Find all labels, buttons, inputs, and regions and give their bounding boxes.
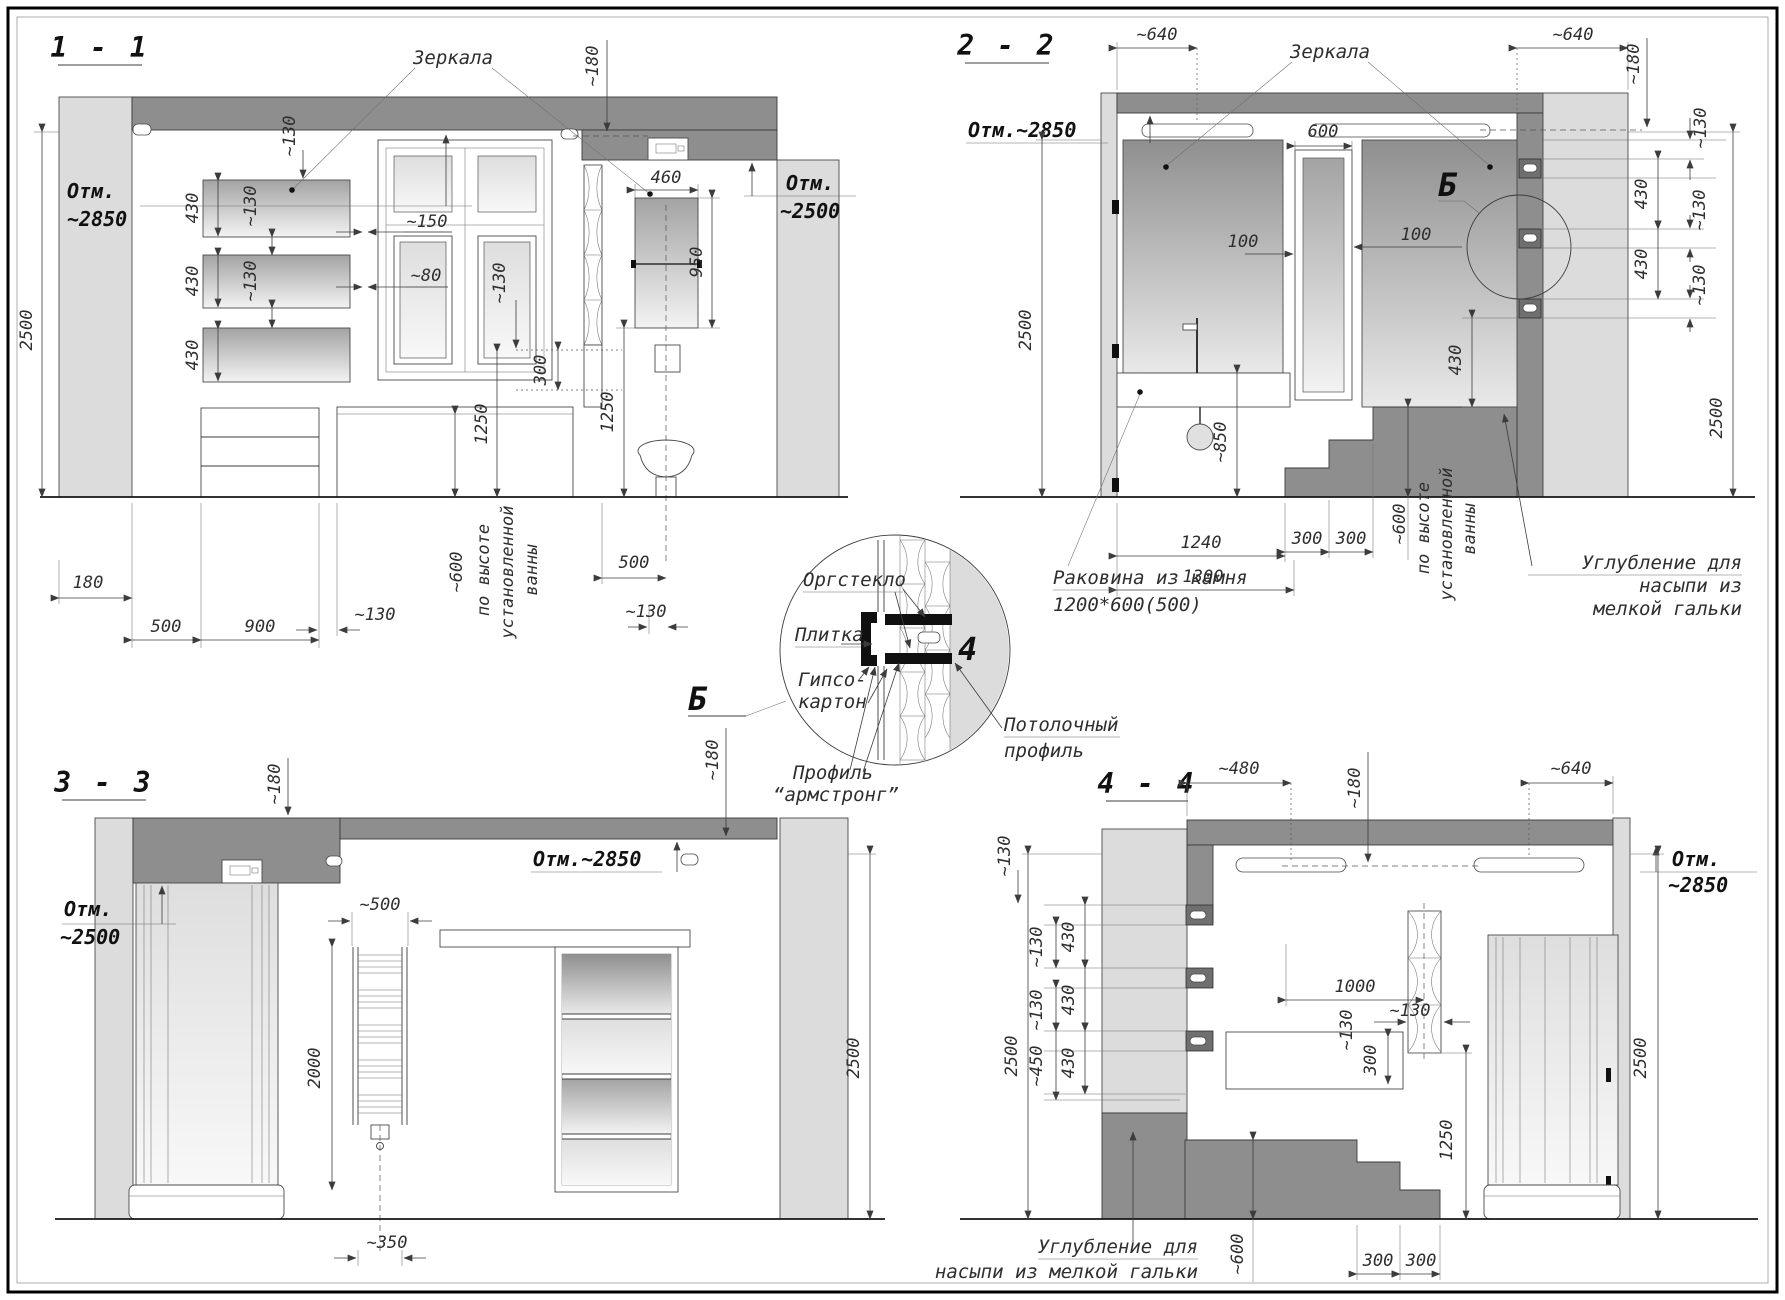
mirror — [203, 255, 350, 308]
recess-note: мелкой гальки — [1592, 598, 1742, 620]
elevation-label: Отм. — [67, 179, 115, 203]
dim-text: 300 — [531, 355, 551, 387]
dim-text: 1250 — [1437, 1120, 1457, 1161]
wall-column — [1102, 829, 1187, 1113]
dim-text: ~850 — [1211, 422, 1231, 463]
dim-text: ~130 — [355, 605, 396, 625]
dim-note: по высоте — [1414, 482, 1434, 574]
dim-text: ~350 — [367, 1233, 408, 1253]
dim-text: ~130 — [490, 263, 510, 304]
dim-text: ~130 — [1690, 265, 1710, 306]
dim-text: 430 — [1059, 985, 1079, 1016]
dim-text: ~180 — [1624, 44, 1644, 85]
dim-text: 500 — [151, 617, 182, 637]
wall-shelf — [440, 930, 690, 947]
recess-note: Углубление для — [1582, 552, 1742, 574]
dim-text: 100 — [1228, 232, 1259, 252]
dim-text: 900 — [245, 617, 276, 637]
dim-text: ~180 — [265, 764, 285, 805]
dim-text: ~130 — [241, 186, 261, 227]
dim-text: 430 — [1446, 345, 1466, 376]
dim-text: ~180 — [703, 740, 723, 781]
drawer-unit — [201, 408, 319, 497]
dim-note: установленной — [1437, 467, 1457, 601]
dim-text: 460 — [651, 168, 682, 188]
material-label: Гипсо- — [798, 669, 867, 691]
dim-text: ~640 — [1137, 25, 1178, 45]
window — [378, 140, 552, 380]
mirror — [203, 180, 350, 237]
section-4-4-title: 4 - 4 — [1097, 767, 1196, 800]
dim-text: ~480 — [1219, 759, 1260, 779]
material-label: Профиль — [792, 762, 873, 784]
dim-text: 1250 — [472, 404, 492, 445]
dim-text: 2500 — [1631, 1038, 1651, 1079]
dim-text: 2500 — [844, 1038, 864, 1079]
detail-mark: Б — [1438, 166, 1458, 204]
dim-text: ~640 — [1553, 25, 1594, 45]
flush-plate — [655, 345, 680, 372]
mirror — [203, 328, 350, 382]
ceiling-light — [1142, 124, 1253, 137]
dim-text: ~130 — [1027, 990, 1047, 1031]
dim-text: 180 — [73, 573, 104, 593]
ceiling-light — [133, 124, 151, 135]
dim-text: 300 — [1361, 1045, 1381, 1077]
dim-text: ~150 — [407, 212, 448, 232]
dim-text: 100 — [1401, 225, 1432, 245]
material-label: “армстронг” — [773, 784, 899, 806]
recess-note: насыпи из — [1639, 575, 1742, 597]
material-label: Потолочный — [1003, 714, 1118, 736]
dim-text: 2500 — [1016, 310, 1036, 351]
material-label: картон — [798, 691, 867, 713]
elevation-value: ~2500 — [60, 925, 120, 949]
wall-column — [95, 818, 133, 1219]
elevation-label: Отм.~2850 — [533, 847, 641, 871]
ceiling-light — [326, 856, 342, 866]
ceiling-light — [1236, 858, 1346, 872]
section-2-2-title: 2 - 2 — [956, 29, 1056, 62]
dim-note: по высоте — [474, 524, 494, 616]
mirrors-label: Зеркала — [1289, 41, 1370, 63]
dim-text: 430 — [183, 193, 203, 224]
dim-text: 1250 — [598, 392, 618, 433]
elevation-drawing: 1 - 1 Зеркала Отм. ~2850 Отм. ~ — [0, 0, 1785, 1300]
dim-text: 300 — [1362, 1251, 1394, 1271]
dim-text: 2000 — [305, 1048, 325, 1089]
dim-text: 430 — [1059, 1048, 1079, 1079]
elevation-label: Отм. — [1672, 847, 1720, 871]
dim-note: ванны — [1460, 503, 1480, 555]
wall-column — [59, 97, 132, 497]
elevation-label: Отм.~2850 — [968, 118, 1076, 142]
ceiling-light — [1474, 858, 1584, 872]
wall-column — [1543, 93, 1628, 497]
mirror — [1303, 158, 1344, 392]
ceiling-soffit — [1187, 820, 1613, 845]
section-3-3-title: 3 - 3 — [53, 766, 153, 799]
dim-text: 430 — [1632, 249, 1652, 280]
dim-text: ~130 — [1027, 927, 1047, 968]
dim-text: ~80 — [411, 266, 442, 286]
decor-tile-strip — [1408, 911, 1441, 1053]
recess-note: Углубление для — [1038, 1236, 1198, 1258]
dim-text: ~600 — [1228, 1234, 1248, 1275]
elevation-value: ~2850 — [67, 207, 127, 231]
ceiling-soffit — [132, 97, 777, 130]
pebble-recess-base — [1102, 1113, 1187, 1219]
dim-text: ~640 — [1551, 759, 1592, 779]
dim-text: ~130 — [626, 602, 667, 622]
section-1-1-title: 1 - 1 — [50, 31, 149, 64]
sink-size: 1200*600(500) — [1053, 594, 1202, 616]
glass-cabinet — [555, 947, 678, 1192]
dim-text: ~180 — [583, 46, 603, 87]
dim-text: 1240 — [1181, 533, 1222, 553]
mirror — [1123, 140, 1283, 373]
dim-text: ~130 — [241, 261, 261, 302]
elevation-value: ~2500 — [780, 199, 840, 223]
dim-text: 430 — [183, 340, 203, 371]
wall-column — [780, 818, 848, 1219]
sink-label: Раковина из камня — [1053, 567, 1247, 589]
dim-text: 300 — [1405, 1251, 1437, 1271]
recess-note: насыпи из мелкой гальки — [935, 1261, 1198, 1283]
elevation-label: Отм. — [64, 897, 112, 921]
dim-text: 500 — [619, 553, 650, 573]
dim-text: 430 — [1632, 179, 1652, 210]
dim-text: 430 — [183, 266, 203, 297]
dim-text: 300 — [1291, 529, 1323, 549]
material-label: Оргстекло — [803, 569, 906, 591]
dim-note: установленной — [498, 505, 518, 639]
dim-text: 2500 — [1002, 1036, 1022, 1077]
dim-text: ~130 — [1390, 1001, 1431, 1021]
recessed-light — [648, 138, 688, 160]
dim-text: ~500 — [360, 895, 401, 915]
dim-note: ванны — [522, 544, 542, 596]
dim-text: ~600 — [447, 552, 467, 593]
shower-cabin — [129, 883, 284, 1219]
dim-text: ~130 — [1337, 1010, 1357, 1051]
glass-partition-edge — [1101, 93, 1117, 497]
detail-mark: Б — [688, 680, 708, 718]
dim-text: ~450 — [1027, 1046, 1047, 1087]
material-label: Плитка — [794, 624, 864, 646]
dim-text: ~130 — [995, 836, 1015, 877]
ceiling-soffit — [340, 818, 777, 839]
dim-text: ~600 — [1390, 504, 1410, 545]
material-label: профиль — [1004, 740, 1084, 762]
ceiling-light — [561, 129, 578, 139]
dim-text: ~130 — [1691, 108, 1711, 149]
mirrors-label: Зеркала — [412, 47, 493, 69]
dim-text: 300 — [1335, 529, 1367, 549]
drawing-sheet: 1 - 1 Зеркала Отм. ~2850 Отм. ~ — [0, 0, 1785, 1300]
dim-text: 2500 — [17, 310, 37, 351]
dim-text: ~180 — [1345, 768, 1365, 809]
ceiling-soffit — [1117, 93, 1543, 113]
recessed-light — [222, 860, 262, 883]
ceiling-light — [681, 854, 698, 865]
elevation-value: ~2850 — [1668, 873, 1728, 897]
detail-number: 4 — [958, 630, 977, 668]
dim-text: ~130 — [280, 116, 300, 157]
dim-text: 1000 — [1335, 977, 1376, 997]
elevation-label: Отм. — [786, 171, 834, 195]
dim-text: 950 — [687, 247, 707, 278]
dim-text: 600 — [1308, 122, 1339, 142]
dim-text: 430 — [1059, 922, 1079, 953]
shower-cabin — [1484, 935, 1620, 1219]
dim-text: 2500 — [1707, 398, 1727, 439]
dim-text: ~130 — [1690, 190, 1710, 231]
